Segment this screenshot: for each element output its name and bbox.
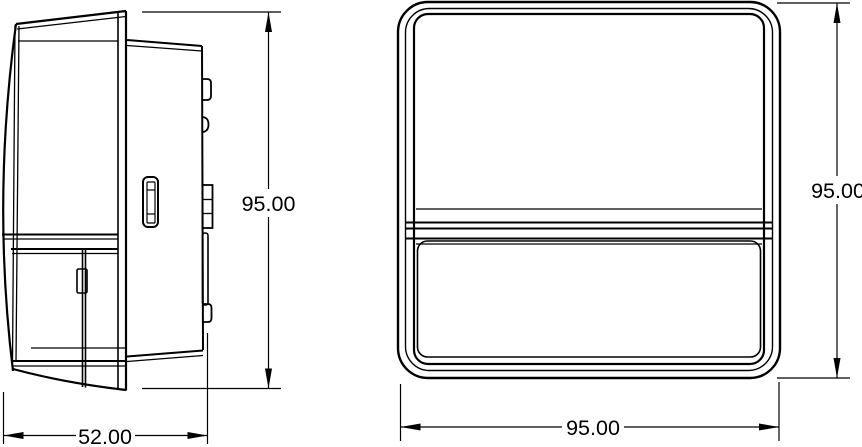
arrowhead-left xyxy=(4,432,24,439)
dimension-label-front-height: 95.00 xyxy=(811,179,862,203)
arrowhead-right xyxy=(188,432,208,439)
mounting-clips xyxy=(203,79,213,322)
arrowhead-down xyxy=(265,369,272,389)
cable-slot xyxy=(143,177,158,227)
dimension-label-side-height: 95.00 xyxy=(242,192,296,216)
housing-outline xyxy=(398,2,780,378)
dimension-side-depth: 52.00 xyxy=(4,333,208,447)
arrowhead-left xyxy=(401,424,421,431)
arrowhead-up xyxy=(265,12,272,32)
cable-slot-outer xyxy=(143,177,158,227)
backbox-top-inner-edge xyxy=(127,46,202,52)
cover-bottom-arc xyxy=(13,369,126,390)
terminal-block xyxy=(203,185,213,228)
front-view xyxy=(398,2,780,378)
arrowhead-down xyxy=(834,358,841,378)
dimension-label-front-width: 95.00 xyxy=(566,416,620,440)
housing-mid xyxy=(406,9,773,371)
backbox-top-edge xyxy=(127,40,202,46)
divider-band xyxy=(406,209,772,244)
sensor-window xyxy=(418,241,761,357)
cover-top-edge xyxy=(16,11,126,24)
dimension-side-height: 95.00 xyxy=(142,12,297,389)
clip-bump xyxy=(203,117,209,132)
housing-outer xyxy=(398,2,780,378)
arrowhead-right xyxy=(759,424,779,431)
drawing-canvas: 95.00 95.00 52.00 xyxy=(0,0,862,447)
dimension-front-width: 95.00 xyxy=(401,382,780,441)
clip-top xyxy=(203,79,212,100)
side-view xyxy=(2,11,213,391)
dimensions: 95.00 95.00 52.00 xyxy=(4,3,862,447)
front-face-inner-line2 xyxy=(16,26,19,362)
technical-drawing: 95.00 95.00 52.00 xyxy=(0,0,862,447)
front-cover xyxy=(2,11,126,391)
arrowhead-up xyxy=(834,3,841,23)
dimension-label-side-depth: 52.00 xyxy=(78,425,132,447)
dimension-front-height: 95.00 xyxy=(777,3,862,378)
back-box xyxy=(127,40,213,362)
cable-slot-inner xyxy=(147,182,155,223)
front-face-inner-line xyxy=(13,25,16,362)
backbox-bottom-edge xyxy=(127,351,203,357)
front-plate xyxy=(414,14,764,364)
